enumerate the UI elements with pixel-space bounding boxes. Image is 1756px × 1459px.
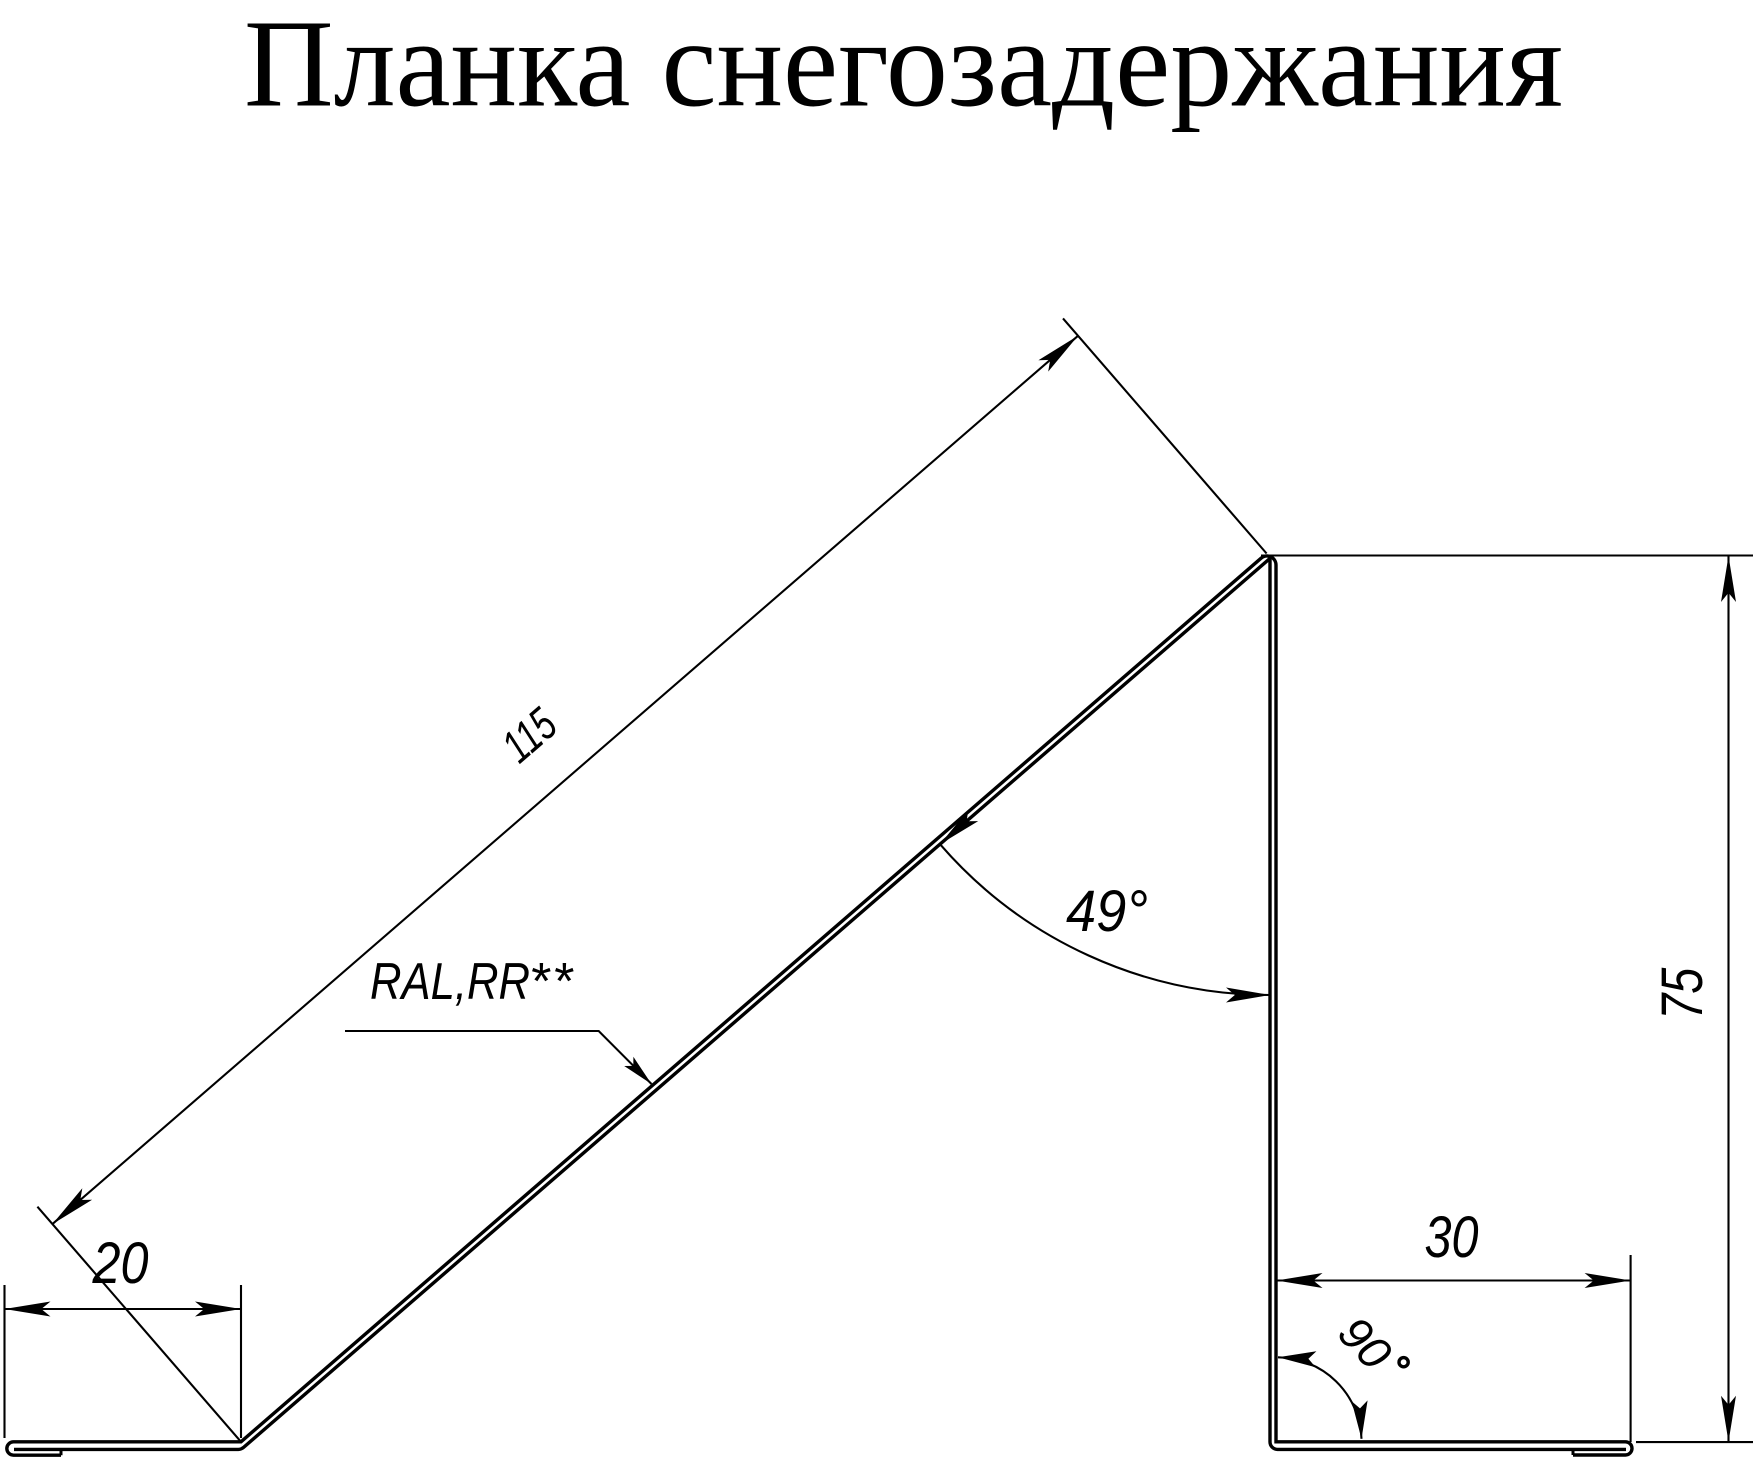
svg-text:75: 75 bbox=[1650, 967, 1715, 1020]
svg-text:Планка снегозадержания: Планка снегозадержания bbox=[244, 0, 1563, 133]
svg-text:30: 30 bbox=[1425, 1205, 1479, 1270]
svg-text:20: 20 bbox=[92, 1231, 149, 1296]
svg-text:*: * bbox=[529, 953, 551, 1011]
svg-text:*: * bbox=[552, 953, 574, 1011]
svg-text:RAL,RR: RAL,RR bbox=[370, 953, 530, 1011]
svg-text:49°: 49° bbox=[1066, 879, 1148, 944]
